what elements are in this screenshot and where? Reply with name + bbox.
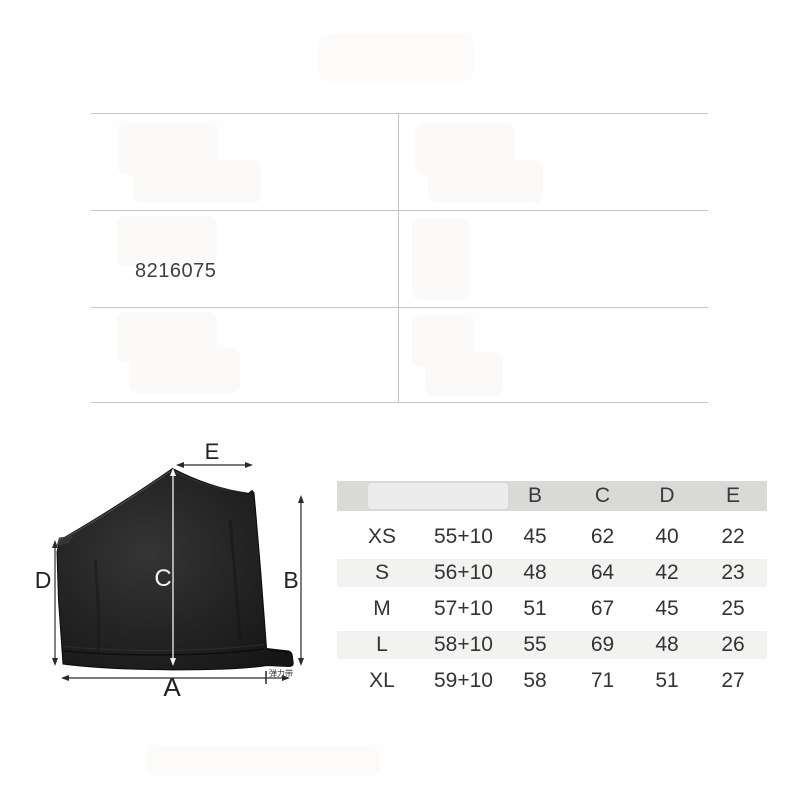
table-row-m: M 57+10 51 67 45 25 xyxy=(337,595,767,623)
faded-placeholder xyxy=(425,352,503,396)
cell-size: XS xyxy=(337,525,427,549)
cell-d: 40 xyxy=(635,525,699,549)
table-row-l: L 58+10 55 69 48 26 xyxy=(337,631,767,659)
cell-e: 27 xyxy=(699,669,767,693)
table-row-xs: XS 55+10 45 62 40 22 xyxy=(337,523,767,551)
cell-a: 58+10 xyxy=(427,633,500,657)
cell-e: 22 xyxy=(699,525,767,549)
dimension-label-c: C xyxy=(154,565,171,592)
table-row-xl: XL 59+10 58 71 51 27 xyxy=(337,667,767,695)
cell-size: L xyxy=(337,633,427,657)
cell-b: 45 xyxy=(500,525,570,549)
cell-d: 48 xyxy=(635,633,699,657)
dimension-label-a: A xyxy=(163,672,181,702)
grid-line-top xyxy=(91,113,708,114)
elastic-band-label: 弹力带 xyxy=(269,668,293,678)
cell-size: XL xyxy=(337,669,427,693)
grid-line-row2 xyxy=(91,210,708,211)
cell-b: 51 xyxy=(500,597,570,621)
garment-shape xyxy=(57,469,294,670)
cell-c: 64 xyxy=(570,561,635,585)
grid-line-bottom xyxy=(91,402,708,403)
cell-a: 57+10 xyxy=(427,597,500,621)
dimension-label-b: B xyxy=(283,567,298,593)
table-row-s: S 56+10 48 64 42 23 xyxy=(337,559,767,587)
size-chart-header-row: B C D E xyxy=(337,481,767,511)
cell-a: 59+10 xyxy=(427,669,500,693)
cell-size: S xyxy=(337,561,427,585)
faded-placeholder xyxy=(130,348,240,393)
grid-line-row3 xyxy=(91,307,708,308)
faded-placeholder xyxy=(412,218,470,300)
cell-e: 26 xyxy=(699,633,767,657)
cell-d: 42 xyxy=(635,561,699,585)
cell-size: M xyxy=(337,597,427,621)
faded-watermark-top xyxy=(318,34,474,81)
header-cell-b: B xyxy=(500,484,570,508)
faded-watermark-bottom xyxy=(147,746,380,776)
size-chart-table: B C D E XS 55+10 45 62 40 22 S 56+10 48 … xyxy=(337,481,767,701)
garment-measurement-diagram: E C D B A 弹力带 xyxy=(30,440,320,710)
cell-e: 25 xyxy=(699,597,767,621)
grid-line-vertical-divider xyxy=(398,113,399,402)
faded-placeholder xyxy=(428,160,543,203)
cell-b: 48 xyxy=(500,561,570,585)
header-cell-d: D xyxy=(635,484,699,508)
faded-header-placeholder xyxy=(368,483,508,509)
cell-b: 58 xyxy=(500,669,570,693)
faded-placeholder xyxy=(133,160,261,203)
cell-b: 55 xyxy=(500,633,570,657)
cell-d: 51 xyxy=(635,669,699,693)
header-cell-c: C xyxy=(570,484,635,508)
product-code: 8216075 xyxy=(135,260,216,283)
dimension-label-e: E xyxy=(205,440,220,464)
dimension-label-d: D xyxy=(35,567,52,593)
dimension-B xyxy=(298,495,304,666)
faded-placeholder xyxy=(117,216,217,266)
cell-c: 69 xyxy=(570,633,635,657)
cell-d: 45 xyxy=(635,597,699,621)
header-cell-e: E xyxy=(699,484,767,508)
cell-c: 62 xyxy=(570,525,635,549)
cell-e: 23 xyxy=(699,561,767,585)
product-size-spec-page: { "page": { "background": "#ffffff", "gr… xyxy=(0,0,800,800)
cell-a: 56+10 xyxy=(427,561,500,585)
cell-c: 71 xyxy=(570,669,635,693)
cell-a: 55+10 xyxy=(427,525,500,549)
cell-c: 67 xyxy=(570,597,635,621)
